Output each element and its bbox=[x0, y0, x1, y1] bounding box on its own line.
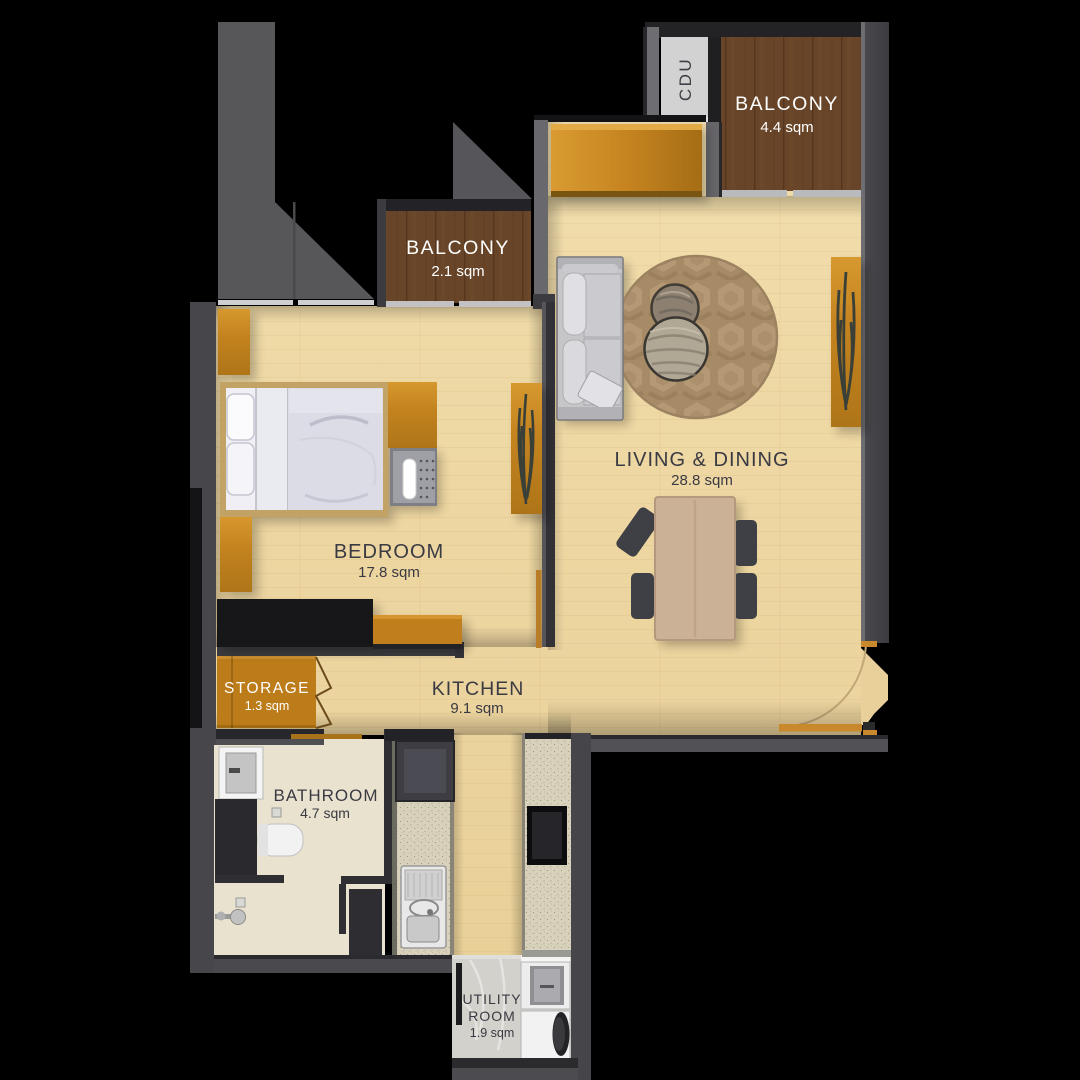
svg-text:BALCONY: BALCONY bbox=[735, 93, 839, 115]
svg-text:4.4 sqm: 4.4 sqm bbox=[760, 119, 813, 136]
svg-text:KITCHEN: KITCHEN bbox=[432, 678, 525, 700]
svg-text:4.7 sqm: 4.7 sqm bbox=[300, 805, 350, 821]
svg-text:STORAGE: STORAGE bbox=[224, 680, 310, 697]
svg-text:BALCONY: BALCONY bbox=[406, 237, 510, 259]
svg-text:CDU: CDU bbox=[676, 57, 695, 101]
svg-text:1.3 sqm: 1.3 sqm bbox=[245, 699, 289, 713]
svg-text:UTILITY: UTILITY bbox=[462, 991, 521, 1007]
svg-text:BEDROOM: BEDROOM bbox=[334, 541, 444, 563]
svg-text:1.9 sqm: 1.9 sqm bbox=[470, 1026, 514, 1040]
svg-text:ROOM: ROOM bbox=[468, 1008, 516, 1024]
svg-text:2.1 sqm: 2.1 sqm bbox=[431, 263, 484, 280]
svg-text:9.1 sqm: 9.1 sqm bbox=[450, 700, 503, 717]
svg-text:28.8 sqm: 28.8 sqm bbox=[671, 472, 733, 489]
svg-text:17.8 sqm: 17.8 sqm bbox=[358, 564, 420, 581]
svg-text:LIVING & DINING: LIVING & DINING bbox=[614, 449, 789, 471]
svg-text:BATHROOM: BATHROOM bbox=[274, 786, 379, 805]
